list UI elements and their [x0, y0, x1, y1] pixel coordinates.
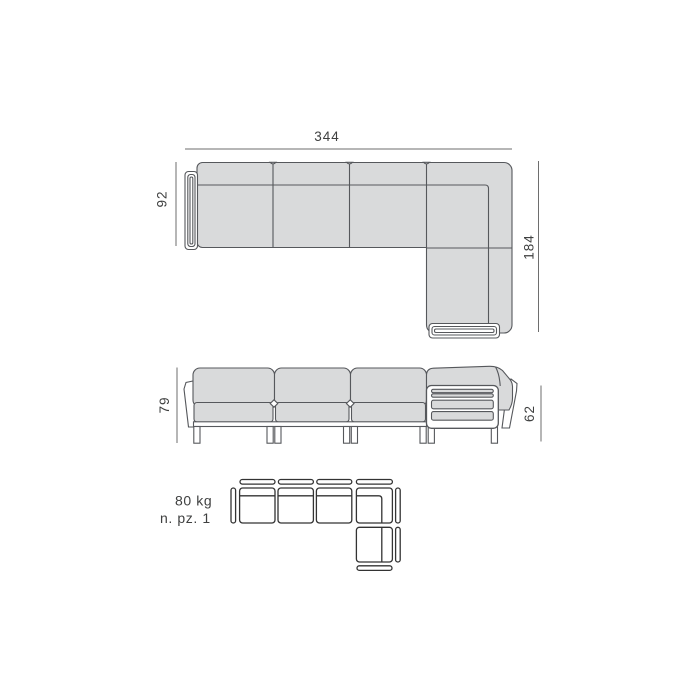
legs [194, 427, 498, 444]
right-depth-dimension-label: 184 [522, 234, 537, 260]
slat [432, 412, 494, 421]
icon-right-back-slat [396, 488, 401, 523]
modular-configuration-icon [231, 480, 400, 571]
seat-cushion [194, 403, 273, 423]
left-armrest-top-view [185, 172, 198, 250]
seat-cushion [352, 403, 426, 423]
arm-height-dimension-label: 62 [522, 405, 537, 422]
corner-slatted-arm-frame [427, 386, 499, 429]
leg [491, 427, 497, 444]
icon-back-slat [278, 480, 313, 485]
bottom-armrest-top-view [429, 324, 500, 339]
sofa-front-view: 79 62 [157, 366, 541, 443]
icon-bottom-arm-slat [357, 566, 392, 571]
leg [428, 427, 434, 444]
technical-drawing: 344 92 184 [0, 0, 700, 700]
icon-right-back-slat [396, 527, 401, 562]
leg [344, 427, 350, 444]
cushion-notch [424, 162, 430, 164]
weight-label: 80 kg [175, 493, 212, 509]
icon-module [356, 527, 392, 562]
back-cushion [193, 368, 275, 407]
back-cushion [275, 368, 351, 407]
icon-corner-module [356, 488, 392, 523]
sofa-top-view: 344 92 184 [155, 129, 539, 338]
slat [432, 394, 494, 397]
frame-rail [194, 422, 427, 427]
leg [194, 427, 200, 444]
width-dimension-label: 344 [314, 129, 340, 144]
cushion-notch [347, 162, 353, 164]
slat [432, 389, 494, 392]
icon-module [240, 488, 275, 523]
icon-module [278, 488, 313, 523]
pieces-label: n. pz. 1 [160, 510, 211, 526]
icon-left-arm-slat [231, 488, 236, 523]
leg [351, 427, 357, 444]
dimension-sheet: 344 92 184 [0, 0, 700, 700]
leg [420, 427, 426, 444]
height-dimension-label: 79 [157, 396, 172, 413]
seat-cushion [276, 403, 350, 423]
icon-back-slat [240, 480, 275, 485]
cushion-notch [270, 162, 276, 164]
icon-back-slat [317, 480, 352, 485]
icon-back-slat [356, 480, 392, 485]
leg [267, 427, 273, 444]
armrest-outer [429, 324, 500, 339]
icon-module [316, 488, 351, 523]
leg [275, 427, 281, 444]
left-depth-dimension-label: 92 [155, 190, 170, 207]
armrest-outer [185, 172, 198, 250]
specs: 80 kg n. pz. 1 [160, 493, 212, 527]
back-cushion [351, 368, 427, 407]
slat [432, 400, 494, 409]
